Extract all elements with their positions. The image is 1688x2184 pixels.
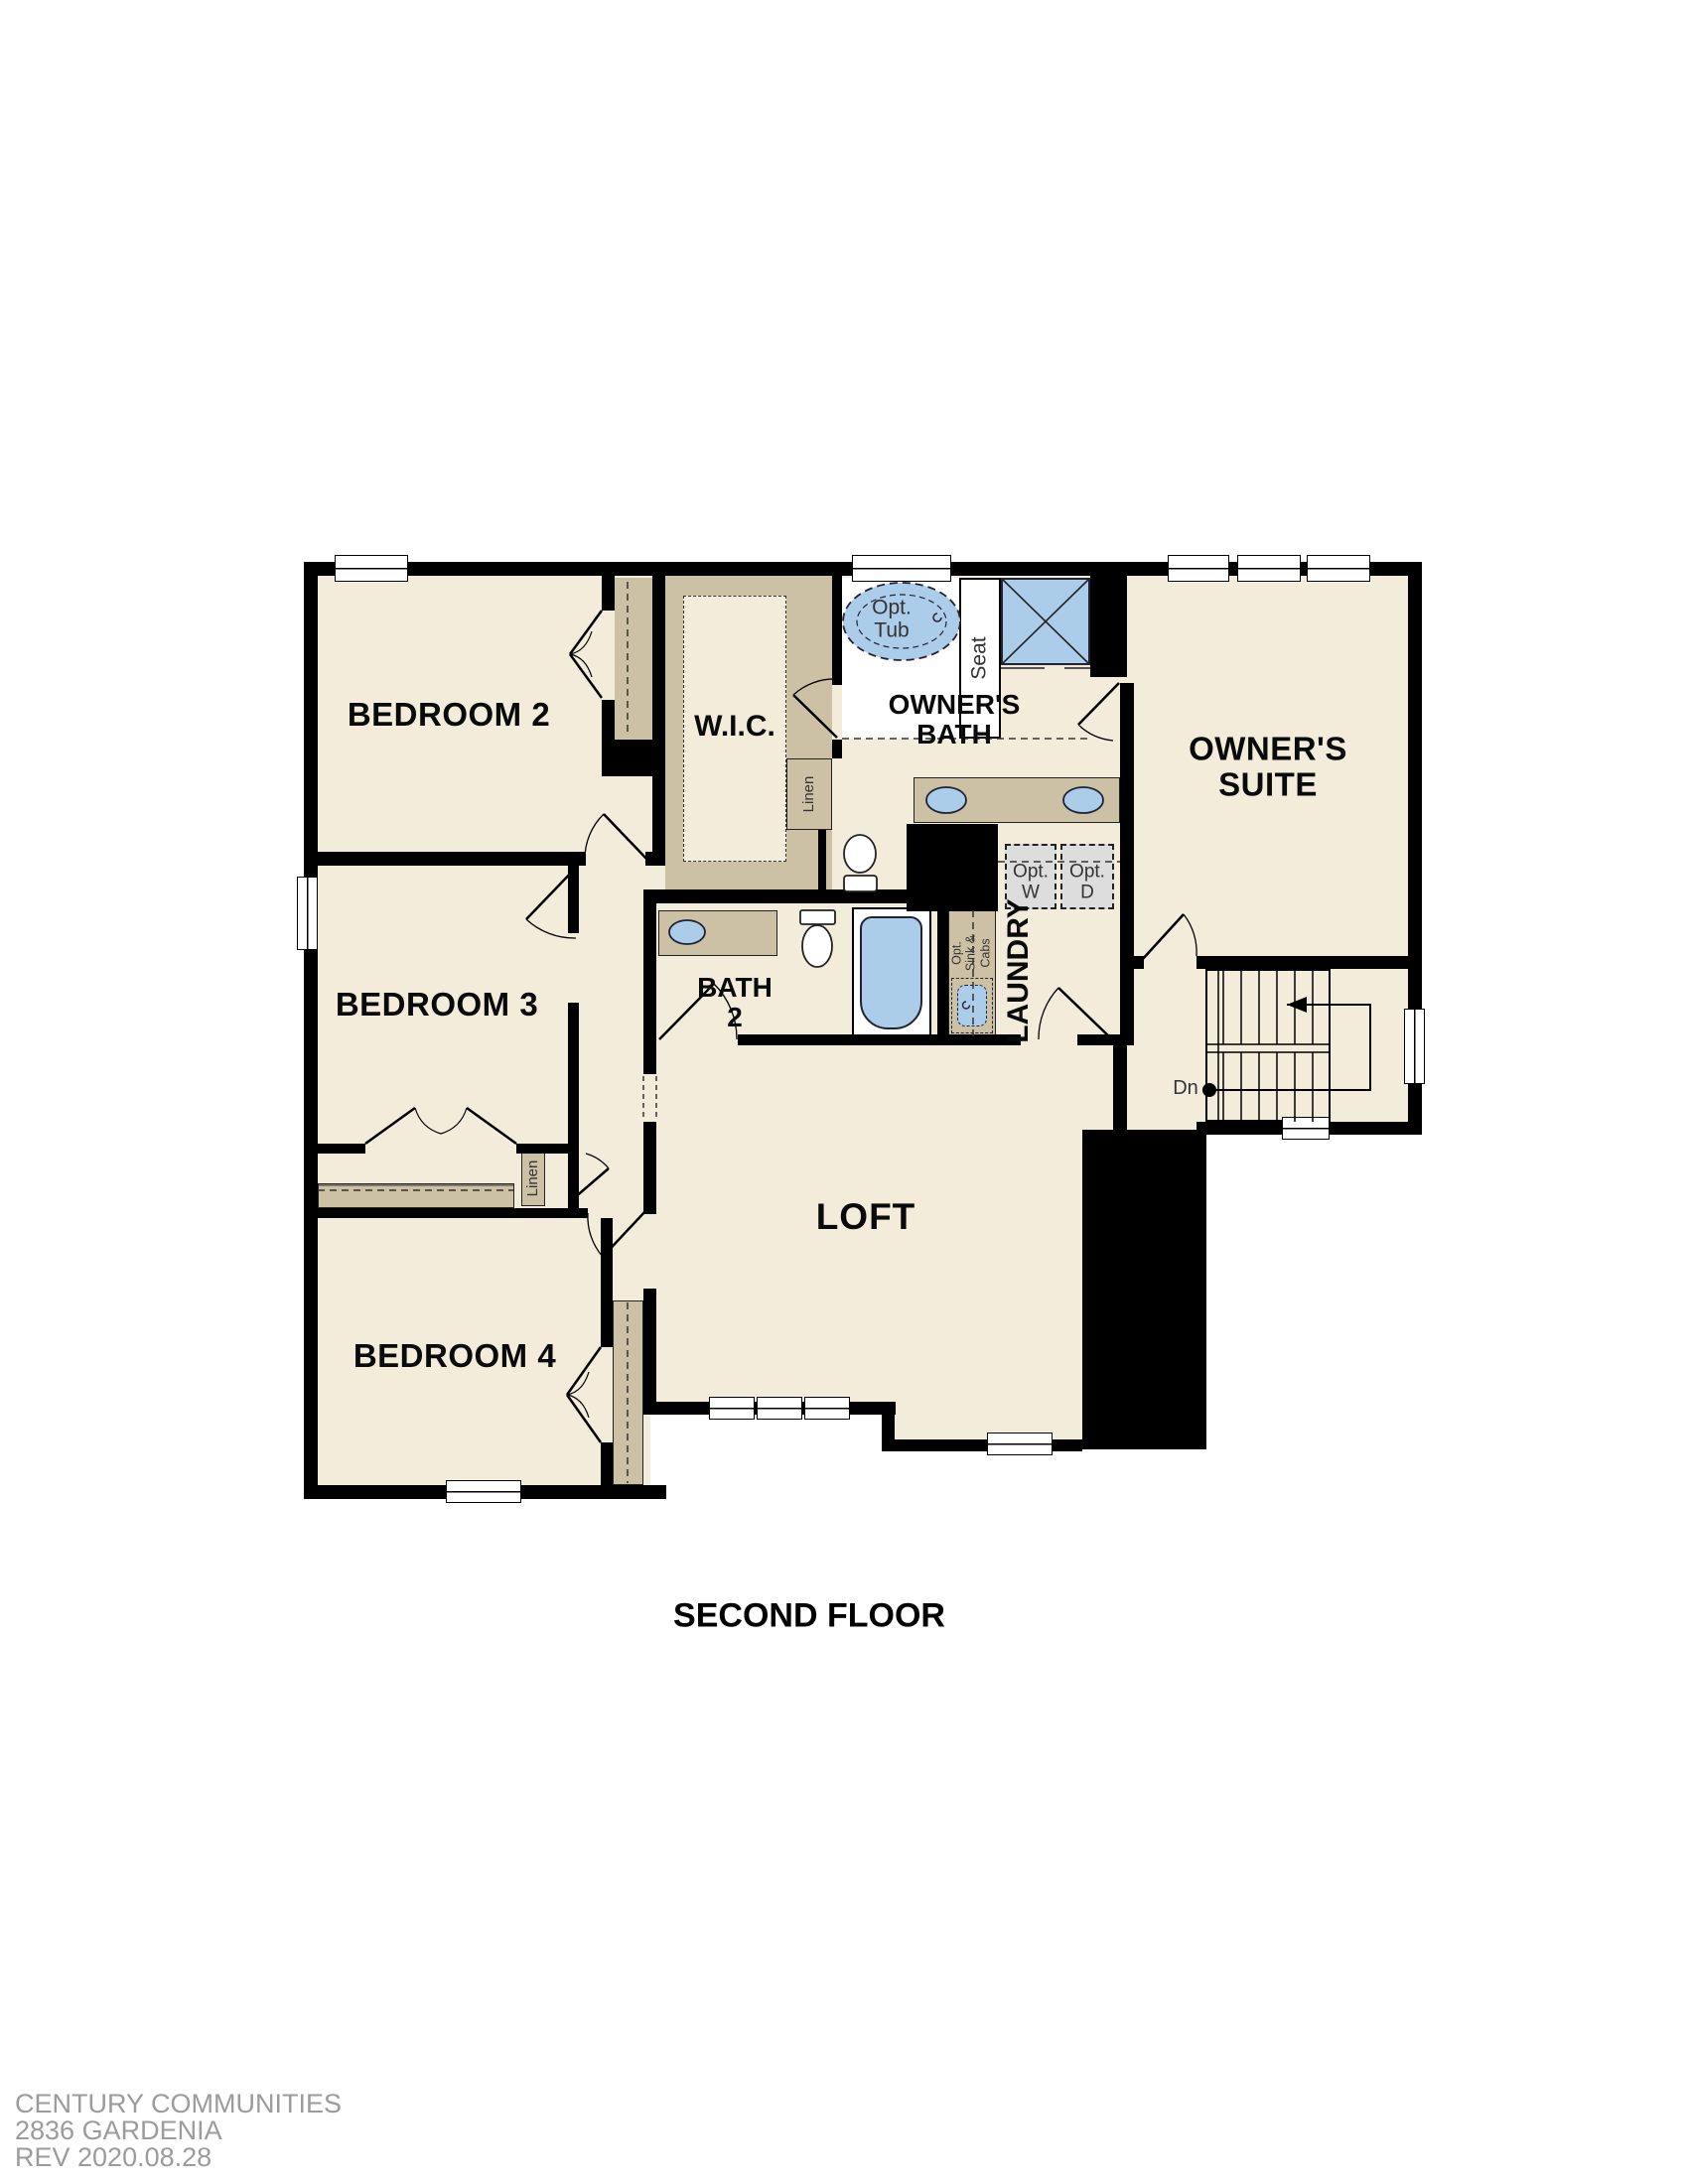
wall	[643, 889, 910, 903]
bath2-tub	[860, 916, 922, 1029]
opt-sink-cabs-label: Opt. Sink & Cabs	[949, 935, 992, 971]
wall	[738, 1034, 1021, 1045]
room-label-owners-bath: OWNER'S BATH	[889, 690, 1021, 750]
wall	[937, 910, 948, 1039]
room-label-loft: LOFT	[816, 1197, 916, 1237]
window	[1237, 555, 1301, 582]
window	[1168, 555, 1229, 582]
wall	[1090, 576, 1127, 677]
seat-label: Seat	[969, 636, 992, 679]
window	[335, 555, 408, 582]
wall	[602, 576, 615, 611]
wall	[1113, 1045, 1127, 1135]
wall	[643, 1122, 656, 1214]
room-label-wic: W.I.C.	[694, 711, 775, 743]
staircase	[1205, 969, 1331, 1122]
floor-plan-page: BEDROOM 2 BEDROOM 3 BEDROOM 4 W.I.C. OWN…	[0, 0, 1688, 2184]
wall	[818, 830, 826, 889]
page-title: SECOND FLOOR	[673, 1597, 945, 1636]
wall	[1120, 683, 1134, 1045]
window	[852, 555, 951, 582]
wall	[568, 866, 579, 933]
bedroom2-closet	[615, 578, 652, 740]
wall	[1196, 956, 1408, 969]
opt-washer-label: Opt. W	[1013, 862, 1049, 902]
owners-bath-vanity	[914, 777, 1120, 823]
room-label-bedroom-2: BEDROOM 2	[348, 697, 550, 733]
stairs-down-label: Dn	[1173, 1078, 1198, 1100]
opt-sink-line3: Cabs	[978, 935, 992, 971]
window	[1404, 1009, 1425, 1084]
window	[1307, 555, 1370, 582]
owners-suite-line1: OWNER'S	[1189, 731, 1347, 766]
wall	[568, 1003, 579, 1144]
opt-laundry-sink	[957, 985, 987, 1026]
wall	[304, 852, 586, 866]
opt-tub-line1: Opt.	[872, 597, 912, 619]
floor-loft	[650, 1135, 1082, 1402]
bath2-line1: BATH	[697, 973, 773, 1003]
wall	[645, 852, 665, 866]
opt-d-line1: Opt.	[1069, 862, 1105, 883]
opt-tub-label: Opt. Tub	[872, 597, 912, 641]
owners-bath-line1: OWNER'S	[889, 690, 1021, 720]
wall	[652, 576, 665, 852]
wall	[643, 1289, 656, 1402]
window	[804, 1397, 850, 1420]
opt-tub-line2: Tub	[872, 619, 912, 642]
window	[297, 877, 318, 950]
plan-footer: CENTURY COMMUNITIES 2836 GARDENIA REV 20…	[15, 2091, 342, 2171]
footer-company: CENTURY COMMUNITIES	[15, 2091, 342, 2117]
window	[709, 1397, 755, 1420]
opt-sink-line2: Sink &	[964, 935, 978, 971]
opt-w-line2: W	[1013, 883, 1049, 903]
wall	[832, 576, 842, 685]
window	[757, 1397, 802, 1420]
wall	[304, 562, 318, 1499]
bath2-line2: 2	[697, 1003, 773, 1032]
room-label-laundry: LAUNDRY	[1003, 898, 1035, 1043]
wall	[832, 740, 842, 758]
bedroom4-closet-rod	[613, 1300, 643, 1485]
owners-bath-line2: BATH	[889, 720, 1021, 750]
wall	[643, 1034, 656, 1074]
room-label-owners-suite: OWNER'S SUITE	[1189, 731, 1347, 801]
window	[1282, 1117, 1330, 1140]
opt-d-line2: D	[1069, 883, 1105, 903]
wall	[304, 1144, 365, 1154]
shower	[1001, 578, 1090, 665]
room-label-bedroom-4: BEDROOM 4	[353, 1338, 556, 1374]
owners-suite-line2: SUITE	[1189, 766, 1347, 802]
opt-w-line1: Opt.	[1013, 862, 1049, 883]
opt-dryer-label: Opt. D	[1069, 862, 1105, 902]
wall	[304, 1208, 588, 1218]
footer-revision: REV 2020.08.28	[15, 2144, 342, 2171]
linen-label-wic: Linen	[801, 776, 817, 813]
wall	[643, 898, 656, 1034]
window	[987, 1433, 1053, 1455]
room-label-bath-2: BATH 2	[697, 973, 773, 1032]
wall	[601, 1442, 613, 1485]
linen-label-hall: Linen	[525, 1160, 541, 1197]
footer-plan-name: 2836 GARDENIA	[15, 2117, 342, 2144]
wall-mass	[1082, 1130, 1206, 1449]
bath2-vanity	[658, 910, 777, 956]
wall	[1077, 1034, 1120, 1045]
room-label-bedroom-3: BEDROOM 3	[336, 987, 538, 1023]
wall	[601, 1218, 613, 1347]
wall	[907, 824, 998, 911]
bedroom3-closet-rod	[318, 1183, 514, 1208]
wall	[568, 1144, 579, 1211]
window	[446, 1480, 521, 1503]
wall	[602, 700, 615, 742]
opt-sink-line1: Opt.	[949, 935, 963, 971]
wall	[1134, 956, 1144, 969]
